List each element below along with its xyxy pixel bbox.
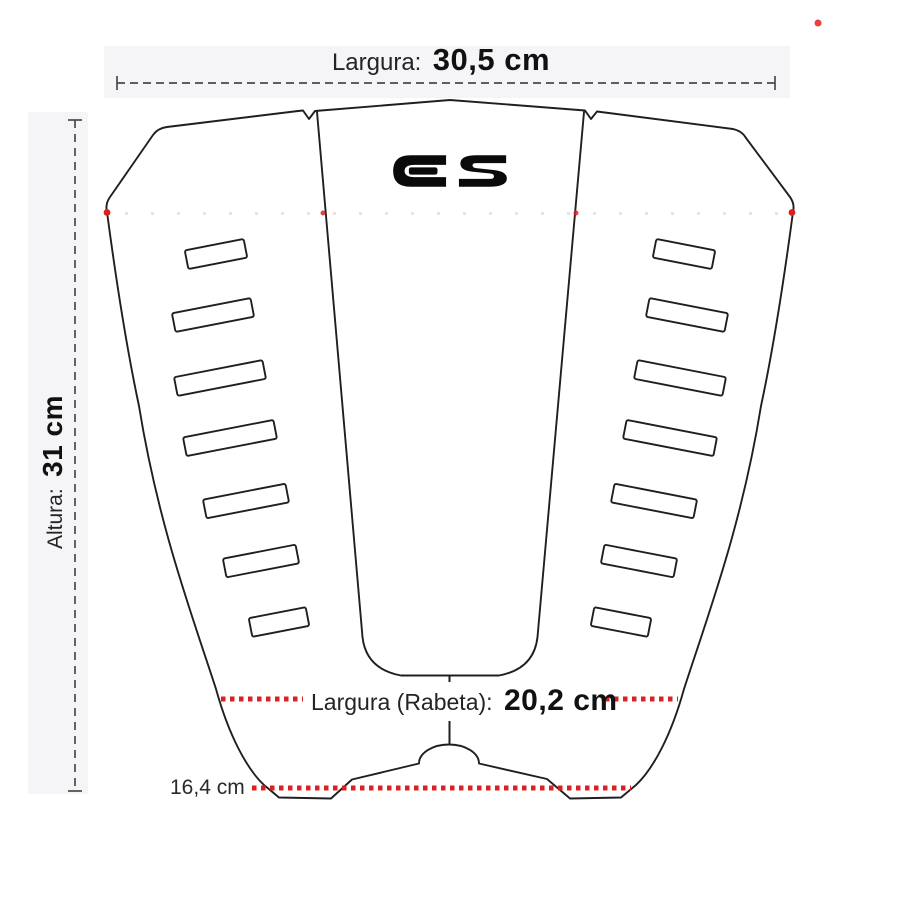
- groove: [174, 360, 266, 396]
- groove: [611, 484, 697, 519]
- width-label-text: Largura:: [332, 49, 421, 76]
- groove: [591, 607, 652, 637]
- groove: [183, 420, 277, 456]
- groove: [646, 298, 728, 332]
- pad-line-art: [0, 0, 900, 900]
- left-piece-grooves: [172, 239, 309, 637]
- tail-width-value-text: 20,2 cm: [504, 684, 618, 717]
- traction-pad-dimension-diagram: Largura: 30,5 cm Altura: 31 cm Largura (…: [0, 0, 900, 900]
- tail-width-dimension-label: Largura (Rabeta): 20,2 cm: [311, 682, 603, 721]
- groove: [653, 239, 716, 269]
- width-marker-dots: [104, 209, 796, 216]
- groove: [634, 360, 726, 396]
- groove: [601, 545, 677, 578]
- pad-center-piece-outline: [317, 112, 584, 676]
- es-logo: [391, 151, 509, 191]
- height-value-text: 31 cm: [37, 395, 68, 477]
- width-value-text: 30,5 cm: [433, 42, 550, 77]
- rear-width-dimension-label: 16,4 cm: [166, 776, 249, 800]
- height-dimension-label: Altura: 31 cm: [37, 357, 69, 587]
- groove: [185, 239, 248, 269]
- height-dimension-line: [68, 120, 82, 791]
- width-dimension-line: [117, 76, 775, 90]
- width-dimension-label: Largura: 30,5 cm: [116, 42, 766, 78]
- groove: [203, 484, 289, 519]
- groove: [623, 420, 717, 456]
- groove: [172, 298, 254, 332]
- rear-width-value-text: 16,4 cm: [170, 776, 245, 799]
- height-label-text: Altura:: [44, 488, 67, 549]
- groove: [223, 545, 299, 578]
- groove: [249, 607, 310, 637]
- stray-red-dot: [815, 20, 822, 27]
- right-piece-grooves: [591, 239, 728, 637]
- tail-width-label-text: Largura (Rabeta):: [311, 689, 493, 715]
